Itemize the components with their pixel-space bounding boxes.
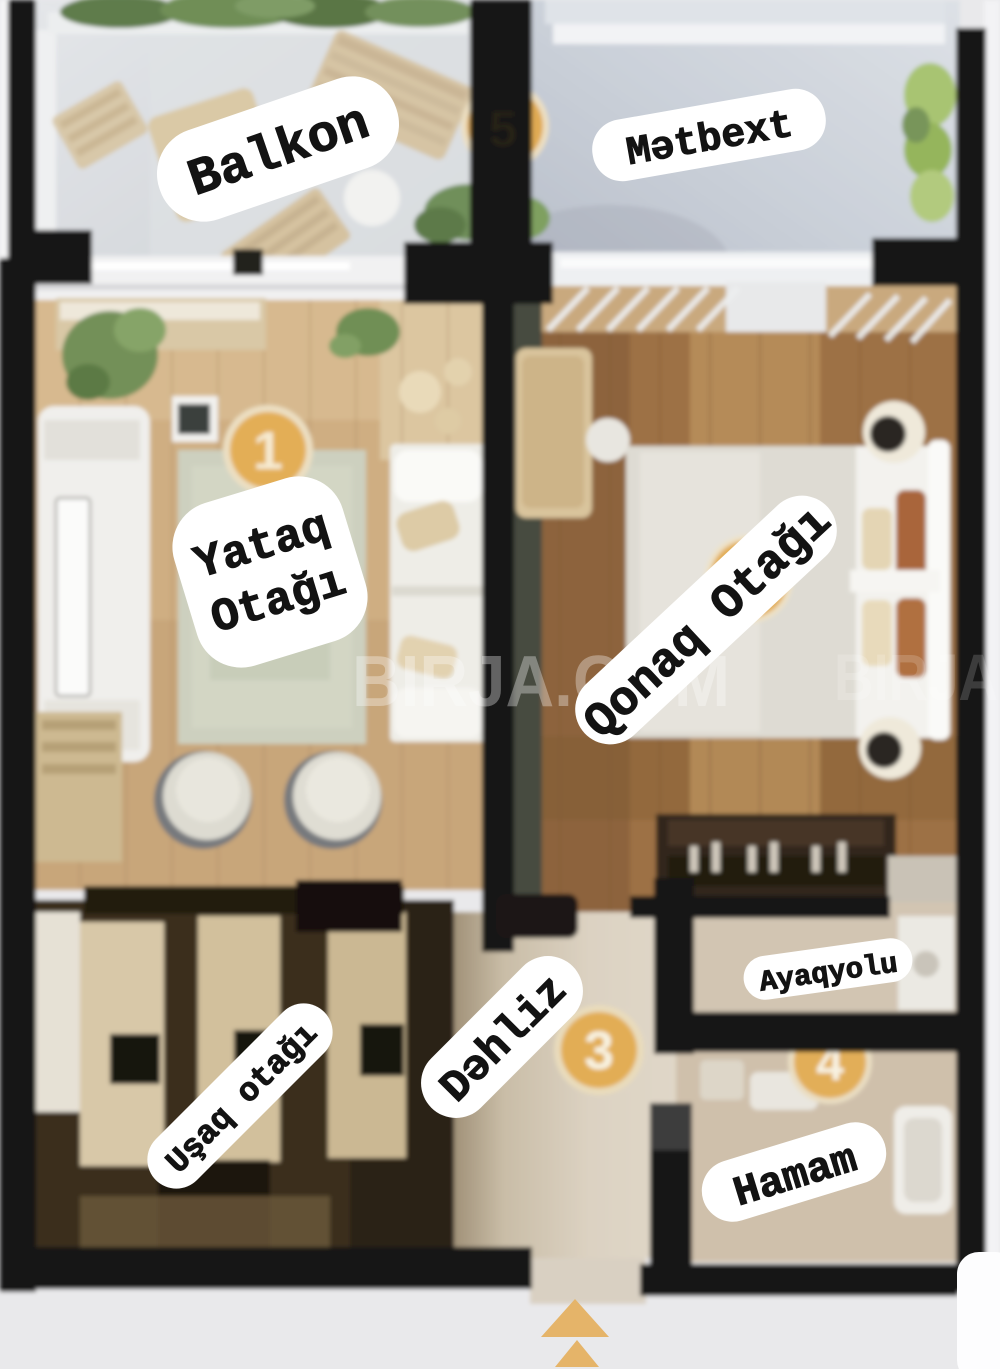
- svg-text:1: 1: [253, 421, 283, 481]
- svg-text:5: 5: [489, 101, 517, 157]
- svg-text:3: 3: [584, 1021, 614, 1081]
- svg-text:BIRJA: BIRJA: [834, 640, 998, 714]
